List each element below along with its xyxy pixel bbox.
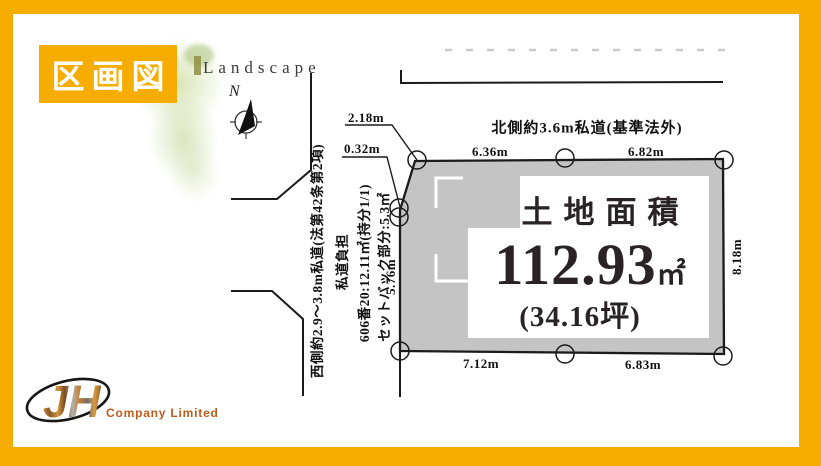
compass-icon xyxy=(230,99,262,139)
brand-text: Landscape xyxy=(203,58,321,78)
dim-top-right: 6.82m xyxy=(628,144,664,160)
brand-accent-bar xyxy=(194,56,201,75)
jh-logo: JH xyxy=(23,371,114,428)
north-road-label: 北側約3.6m私道(基準法外) xyxy=(491,117,682,138)
frame-border-top xyxy=(0,0,821,14)
frame-border-left xyxy=(0,0,13,466)
dim-corner-lower: 0.32m xyxy=(344,141,380,157)
land-area-unit: ㎡ xyxy=(657,259,686,291)
dim-bottom-left: 7.12m xyxy=(463,356,499,372)
west-road-label-1: 西側約2.9～3.8m私道(法第42条第2項) xyxy=(306,144,326,378)
land-area-title: 土地面積 xyxy=(460,187,740,232)
compass-north-label: N xyxy=(229,83,240,101)
land-area-tsubo: (34.16坪) xyxy=(460,293,700,335)
frame-border-right xyxy=(799,0,821,466)
frame-border-bottom xyxy=(0,447,821,466)
dim-left-side: 5.76m xyxy=(383,259,399,295)
west-road-label-3: 606番20:12.11㎡(持分1/1) xyxy=(353,184,373,342)
dim-corner-upper: 2.18m xyxy=(348,110,384,126)
company-name: Company Limited xyxy=(106,406,219,420)
logo-mark: JH xyxy=(43,376,102,427)
north-road-line xyxy=(401,70,723,83)
dim-top-left: 6.36m xyxy=(472,144,508,160)
land-area-value: 112.93㎡ xyxy=(440,231,740,298)
west-road-label-2: 私道負担 xyxy=(331,234,351,290)
plot-map-badge: 区画図 xyxy=(39,45,177,103)
plot-map-page: JH 区画図 Landscape N 北側約3.6m私道(基準法外) 西側約2.… xyxy=(0,0,821,466)
dim-bottom-right: 6.83m xyxy=(625,357,661,373)
west-road-line-upper xyxy=(231,73,311,199)
land-area-number: 112.93 xyxy=(494,232,656,297)
west-road-line-lower xyxy=(231,291,303,396)
